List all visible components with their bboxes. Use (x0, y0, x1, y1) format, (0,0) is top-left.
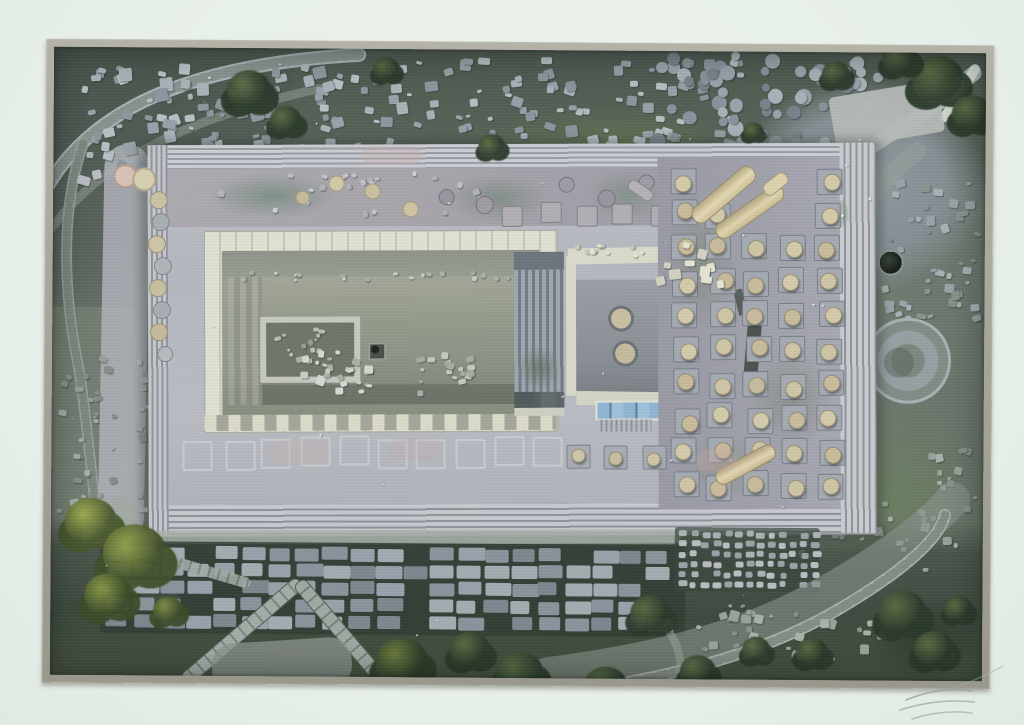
pencil-scribbles (0, 0, 1024, 725)
display-board (0, 0, 1024, 725)
pencil-scribbles-path (900, 701, 974, 710)
pencil-scribbles-path (906, 690, 972, 700)
pencil-scribbles-path (955, 666, 1003, 688)
pencil-scribbles-path (912, 712, 972, 719)
mat-pencil-scribbles (0, 0, 1024, 725)
